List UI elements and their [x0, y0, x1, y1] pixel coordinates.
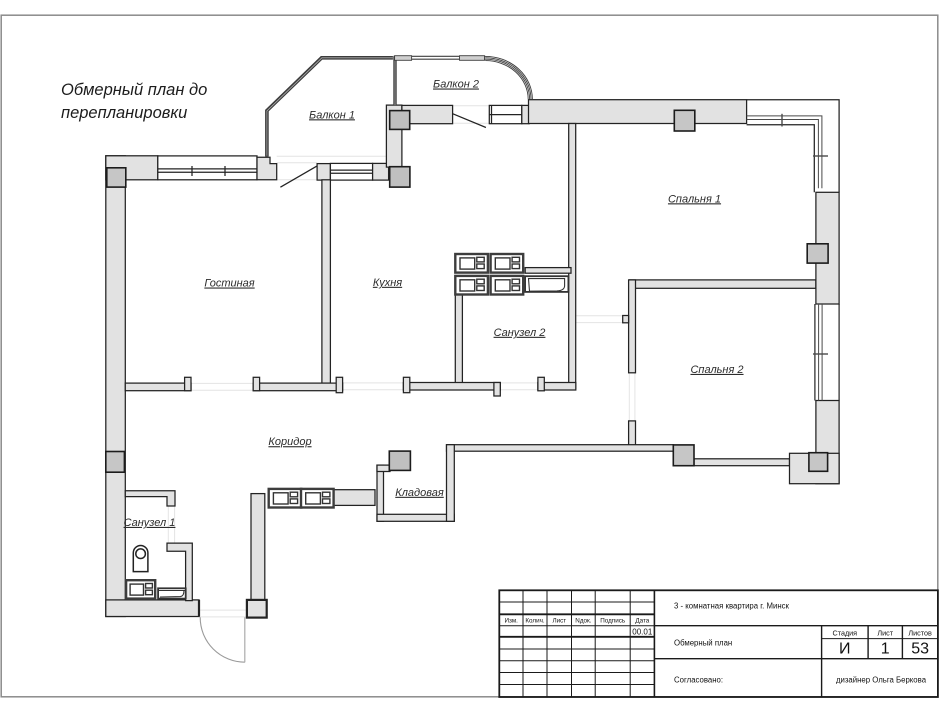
svg-text:Гостиная: Гостиная: [204, 278, 254, 290]
svg-text:Санузел 2: Санузел 2: [494, 327, 546, 339]
svg-text:Обмерный план до: Обмерный план до: [61, 81, 207, 99]
svg-text:Санузел 1: Санузел 1: [124, 517, 176, 529]
svg-text:перепланировки: перепланировки: [61, 104, 187, 122]
svg-text:Обмерный план: Обмерный план: [674, 639, 732, 648]
svg-text:Спальня 2: Спальня 2: [690, 364, 743, 376]
svg-text:53: 53: [911, 641, 929, 658]
svg-text:Балкон 2: Балкон 2: [433, 79, 479, 91]
svg-text:Лист: Лист: [877, 628, 893, 637]
svg-text:1: 1: [881, 641, 890, 658]
svg-text:Дата: Дата: [635, 618, 649, 625]
svg-text:Спальня 1: Спальня 1: [668, 193, 721, 205]
svg-text:Кладовая: Кладовая: [395, 487, 444, 499]
svg-text:дизайнер Ольга Беркова: дизайнер Ольга Беркова: [836, 676, 927, 685]
svg-text:Согласовано:: Согласовано:: [674, 676, 723, 685]
svg-text:00.01: 00.01: [632, 627, 653, 636]
svg-text:Подпись: Подпись: [600, 618, 626, 625]
svg-text:Лист: Лист: [552, 618, 566, 625]
svg-text:Кухня: Кухня: [373, 277, 402, 289]
svg-text:Изм.: Изм.: [504, 618, 518, 625]
svg-text:Листов: Листов: [908, 628, 932, 637]
svg-text:И: И: [839, 641, 851, 658]
svg-text:3 - комнатная квартира г. Минс: 3 - комнатная квартира г. Минск: [674, 602, 790, 611]
svg-text:Балкон 1: Балкон 1: [309, 109, 355, 121]
svg-text:Nдок.: Nдок.: [575, 618, 591, 625]
svg-text:Стадия: Стадия: [833, 628, 858, 637]
svg-text:Колич.: Колич.: [525, 618, 545, 625]
svg-text:Коридор: Коридор: [268, 436, 311, 448]
